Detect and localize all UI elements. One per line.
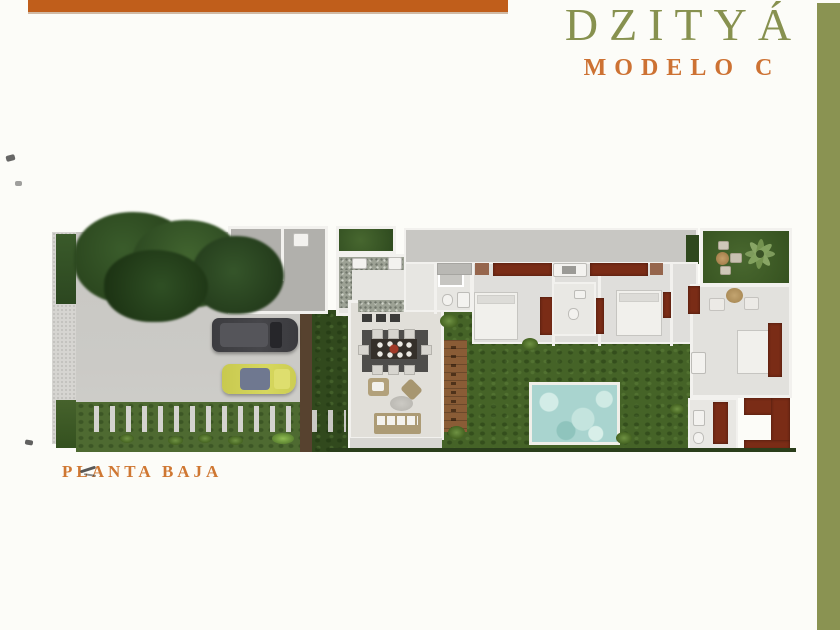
tree-canopy (74, 212, 286, 326)
bedroom2-closet (590, 263, 648, 276)
master-bathroom (688, 398, 738, 452)
courtyard-garden (336, 226, 396, 254)
bistro-table (716, 252, 729, 265)
bistro-chair (720, 266, 731, 275)
rear-covered-strip (404, 228, 698, 264)
round-rug (390, 396, 413, 411)
bed-pillows (619, 293, 659, 302)
bathroom-sink (693, 410, 705, 426)
garden-shrub (522, 338, 538, 350)
dining-chair (404, 365, 415, 375)
master-round-rug (726, 288, 743, 303)
sofa (374, 413, 421, 434)
floor-plan (50, 218, 796, 454)
bathroom-closet (713, 402, 728, 444)
closet-end-cap (650, 263, 663, 275)
vanity-sink (562, 266, 576, 274)
palm-plant (742, 236, 778, 272)
right-accent-bar (817, 3, 840, 630)
top-accent-bar (28, 0, 508, 12)
yellow-car (222, 364, 296, 394)
master-headboard (768, 323, 782, 377)
suv-car (212, 318, 298, 352)
shrub (120, 434, 134, 443)
pouf (368, 378, 389, 396)
bar-stool (390, 314, 400, 322)
rear-cabinet (437, 263, 472, 275)
dining-chair (372, 365, 383, 375)
bedroom2-side-piece (663, 292, 671, 318)
shrub (168, 436, 183, 445)
dining-chair (372, 329, 383, 339)
armchair (744, 297, 759, 310)
plan-caption: PLANTA BAJA (62, 462, 222, 482)
closet-end-cap (475, 263, 489, 275)
shared-bathroom (552, 282, 596, 336)
print-mark (25, 439, 34, 445)
garden-shrub (440, 314, 458, 328)
shrub (228, 436, 243, 445)
west-boundary-wall (300, 310, 312, 452)
sofa-cushions (377, 416, 418, 425)
pouf-throw (372, 382, 384, 391)
hedge-top (56, 234, 76, 304)
toilet (693, 432, 704, 444)
model-subtitle: MODELO C (538, 55, 818, 81)
rear-planter (686, 235, 699, 264)
print-mark (5, 154, 15, 162)
shrub (198, 434, 212, 443)
hedge-bottom (56, 400, 76, 448)
dining-chair (388, 365, 399, 375)
print-mark (15, 181, 22, 186)
car-hood (274, 369, 290, 389)
garden-shrub (448, 426, 465, 439)
garden-shrub (670, 404, 684, 414)
bedroom1-bed (474, 292, 518, 340)
bathroom-sink (574, 290, 586, 299)
garden-shrub (616, 432, 632, 444)
bathroom-sink (457, 292, 470, 308)
bathroom-door (596, 298, 604, 334)
dining-chair (404, 329, 415, 339)
stove (352, 258, 367, 269)
kitchen-island (358, 300, 404, 312)
tree-foliage (104, 250, 208, 322)
vanity (553, 263, 587, 277)
tree-foliage (192, 236, 284, 314)
palm-center (756, 250, 764, 258)
toilet (442, 294, 453, 306)
dining-chair (421, 345, 432, 355)
master-dresser (688, 286, 700, 314)
bistro-chair (718, 241, 729, 250)
suv-windshield (270, 322, 282, 348)
bright-bush (272, 433, 294, 444)
car-glass (240, 368, 270, 390)
title-block: DZITYÁ MODELO C (538, 0, 818, 81)
dining-chair (358, 345, 369, 355)
bed-pillows (477, 295, 515, 304)
dining-chair (388, 329, 399, 339)
bedroom2-bed (616, 290, 662, 336)
refrigerator (388, 257, 402, 270)
paver-walkway-extension (312, 410, 346, 432)
bar-stool (362, 314, 372, 322)
development-title: DZITYÁ (538, 0, 818, 52)
master-cabinet (691, 352, 706, 374)
swimming-pool (529, 382, 620, 445)
water-heater (293, 233, 309, 247)
bar-stool (376, 314, 386, 322)
paver-walkway (94, 406, 308, 432)
armchair (709, 298, 725, 311)
bedroom1-closet (493, 263, 552, 276)
toilet (568, 308, 579, 320)
suv-roof (220, 323, 268, 347)
dining-table (371, 339, 417, 359)
page: { "header": { "title": "DZITYÁ", "subtit… (0, 0, 840, 630)
deck-joints (451, 340, 456, 432)
south-boundary-hedge (330, 448, 796, 452)
wood-deck (440, 340, 467, 432)
bistro-chair (730, 253, 742, 263)
